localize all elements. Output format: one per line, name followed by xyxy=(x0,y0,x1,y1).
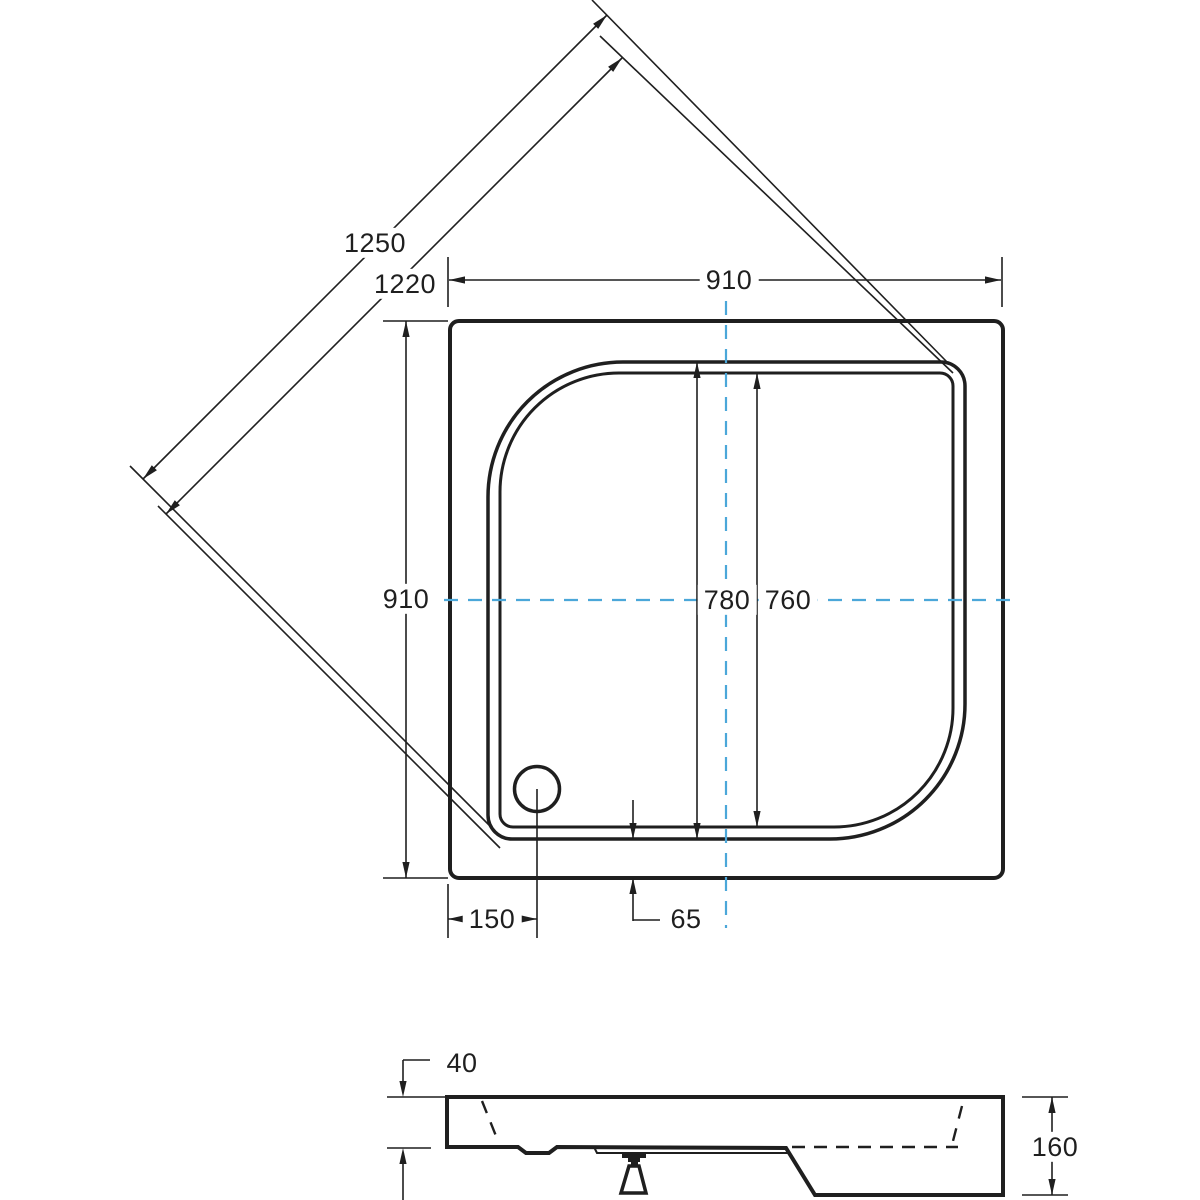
arrowhead xyxy=(753,373,760,389)
drain-flange xyxy=(622,1152,646,1158)
shower-tray-technical-drawing: 1250 1220 910 910 780 760 150 65 40 160 xyxy=(0,0,1200,1200)
arrowhead xyxy=(1048,1097,1055,1113)
arrowhead xyxy=(402,862,409,878)
arrowhead xyxy=(629,823,636,839)
arrowhead xyxy=(399,1148,406,1164)
drain-neck xyxy=(628,1158,640,1162)
hidden-edge-right-slope xyxy=(953,1106,962,1141)
arrowhead xyxy=(448,915,464,922)
dim-label-drain-150: 150 xyxy=(463,904,522,934)
dim-label-diagonal-1250: 1250 xyxy=(338,228,412,258)
arrowhead xyxy=(1048,1179,1055,1195)
arrowhead xyxy=(449,276,465,283)
hidden-edge-left-slope xyxy=(482,1101,498,1141)
dim-label-basin-780: 780 xyxy=(698,585,757,615)
arrowhead xyxy=(629,878,636,894)
dim-label-rim-height-40: 40 xyxy=(440,1048,483,1078)
dim-label-total-height-160: 160 xyxy=(1026,1132,1085,1162)
arrowhead xyxy=(402,321,409,337)
arrowhead xyxy=(399,1081,406,1097)
dim-label-rim-gap-65: 65 xyxy=(664,904,707,934)
arrowheads xyxy=(143,15,1056,1195)
drawing-canvas xyxy=(0,0,1200,1200)
drain-trap xyxy=(621,1166,646,1193)
dim-label-diagonal-1220: 1220 xyxy=(368,269,442,299)
arrowhead xyxy=(753,811,760,827)
witness-line-diagonal-top-outer xyxy=(592,0,947,362)
dim-label-basin-760: 760 xyxy=(759,585,818,615)
witness-line-diagonal-bottom-outer xyxy=(130,466,494,830)
arrowhead xyxy=(521,915,537,922)
dim-label-depth-910: 910 xyxy=(377,584,436,614)
arrowhead xyxy=(985,276,1001,283)
arrowhead xyxy=(693,362,700,378)
dim-label-width-910: 910 xyxy=(700,265,759,295)
arrowhead xyxy=(693,823,700,839)
side-profile-outline xyxy=(447,1097,1003,1195)
